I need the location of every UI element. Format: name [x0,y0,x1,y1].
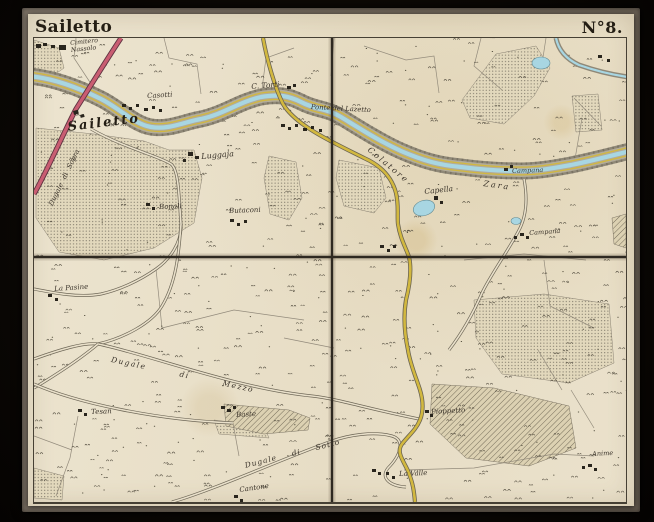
building-marker [188,152,193,156]
building-marker [136,104,139,107]
building-marker [230,219,234,222]
building-marker [48,294,52,297]
building-marker [288,127,291,130]
building-marker [434,196,438,200]
building-marker [84,413,87,416]
building-marker [281,124,285,127]
road-dugale-di-sotto-casing [172,434,406,502]
building-marker [122,104,126,107]
map-mount-frame: Sailetto N°8. [22,8,640,512]
field-patch [264,156,302,220]
building-marker [378,472,381,475]
building-marker [129,107,132,110]
building-marker [430,414,433,417]
wooded-patch [612,214,626,248]
map-artwork [34,38,626,502]
road-fill [34,384,233,423]
building-marker [520,233,524,236]
field-patch [572,94,602,132]
map-sheet: Sailetto N°8. [28,14,634,506]
building-marker [80,114,85,118]
building-marker [51,45,55,48]
building-marker [607,59,610,62]
building-marker [440,201,443,204]
building-marker [425,410,429,413]
building-marker [526,236,529,239]
map-content: Cimitero NassoloCasottiC. TortiPonte del… [33,37,627,504]
building-marker [183,159,186,162]
title-bar: Sailetto N°8. [33,14,625,37]
building-marker [303,128,307,131]
building-marker [319,129,322,132]
building-marker [372,469,376,472]
building-marker [510,165,513,168]
building-marker [237,223,240,226]
building-marker [144,108,148,111]
building-marker [195,156,199,159]
building-marker [152,106,155,109]
building-marker [159,109,162,112]
building-marker [386,472,389,475]
building-marker [233,406,236,409]
map-title: Sailetto [35,17,112,37]
building-marker [504,168,508,171]
building-marker [240,499,243,502]
building-marker [78,409,82,412]
building-marker [59,45,66,50]
building-marker [152,207,155,210]
building-marker [582,466,585,469]
pond [532,57,550,69]
building-marker [594,468,597,471]
building-marker [311,126,314,129]
building-marker [393,245,396,248]
road-casing [34,384,233,423]
building-marker [234,495,238,498]
building-marker [380,245,384,248]
building-marker [36,44,41,48]
road-dugale-di-sotto [172,434,406,502]
yellow-road [263,38,423,502]
building-marker [55,298,58,301]
building-marker [43,43,47,46]
building-marker [293,84,296,87]
building-marker [244,220,247,223]
building-marker [514,236,517,239]
building-marker [387,249,390,252]
building-marker [295,124,298,127]
building-marker [227,409,231,412]
sheet-number: N°8. [582,18,623,37]
building-marker [287,86,291,89]
field-patch [474,294,614,383]
building-marker [221,406,225,409]
building-marker [392,476,395,479]
pond-capella [411,197,437,218]
building-marker [146,203,150,206]
field-patch [34,468,64,500]
pond [511,218,521,225]
building-marker [598,55,602,58]
building-marker [588,464,592,467]
